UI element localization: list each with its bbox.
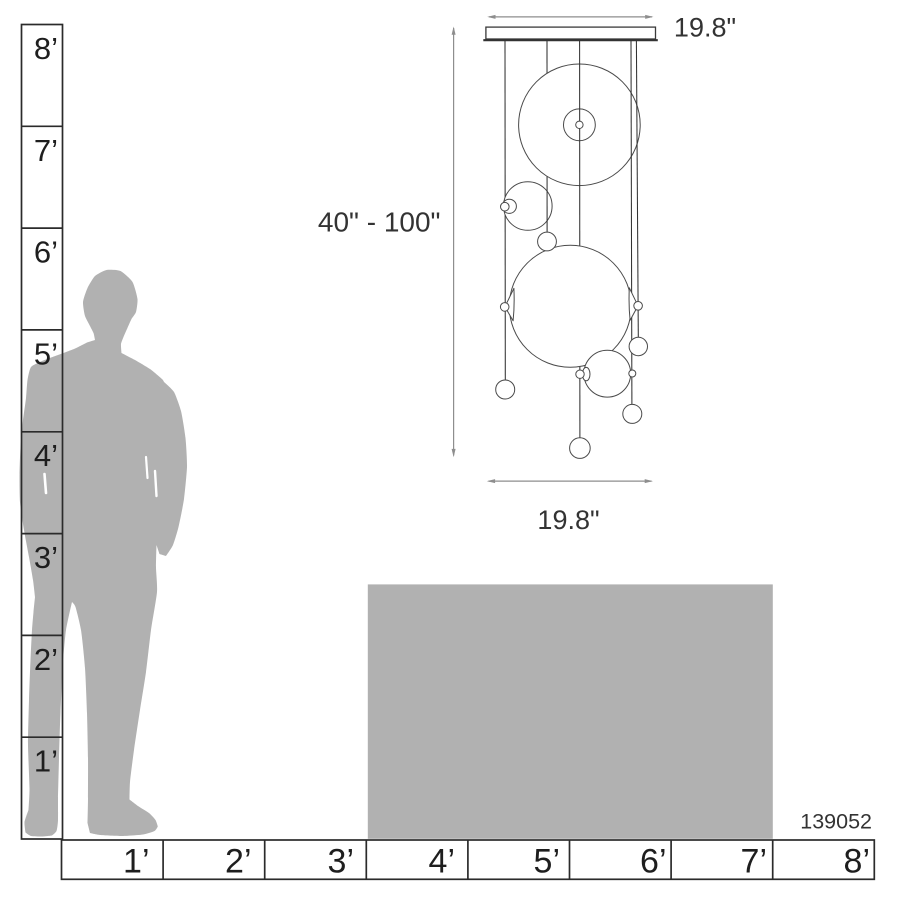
svg-text:40" - 100": 40" - 100" bbox=[318, 207, 441, 238]
svg-text:3’: 3’ bbox=[34, 540, 58, 575]
svg-text:139052: 139052 bbox=[800, 810, 872, 834]
svg-text:8’: 8’ bbox=[844, 843, 870, 881]
svg-text:5’: 5’ bbox=[34, 336, 58, 371]
svg-text:8’: 8’ bbox=[34, 31, 58, 66]
svg-text:19.8": 19.8" bbox=[537, 505, 599, 535]
svg-text:3’: 3’ bbox=[328, 843, 354, 881]
svg-text:4’: 4’ bbox=[34, 438, 58, 473]
svg-text:1’: 1’ bbox=[123, 843, 149, 881]
svg-text:19.8": 19.8" bbox=[674, 13, 736, 43]
svg-text:2’: 2’ bbox=[225, 843, 251, 881]
svg-text:2’: 2’ bbox=[34, 642, 58, 677]
svg-text:6’: 6’ bbox=[34, 235, 58, 270]
svg-text:4’: 4’ bbox=[429, 843, 455, 881]
svg-text:5’: 5’ bbox=[534, 843, 560, 881]
svg-text:6’: 6’ bbox=[640, 843, 666, 881]
svg-text:1’: 1’ bbox=[34, 744, 58, 779]
svg-text:7’: 7’ bbox=[34, 133, 58, 168]
svg-text:7’: 7’ bbox=[741, 843, 767, 881]
